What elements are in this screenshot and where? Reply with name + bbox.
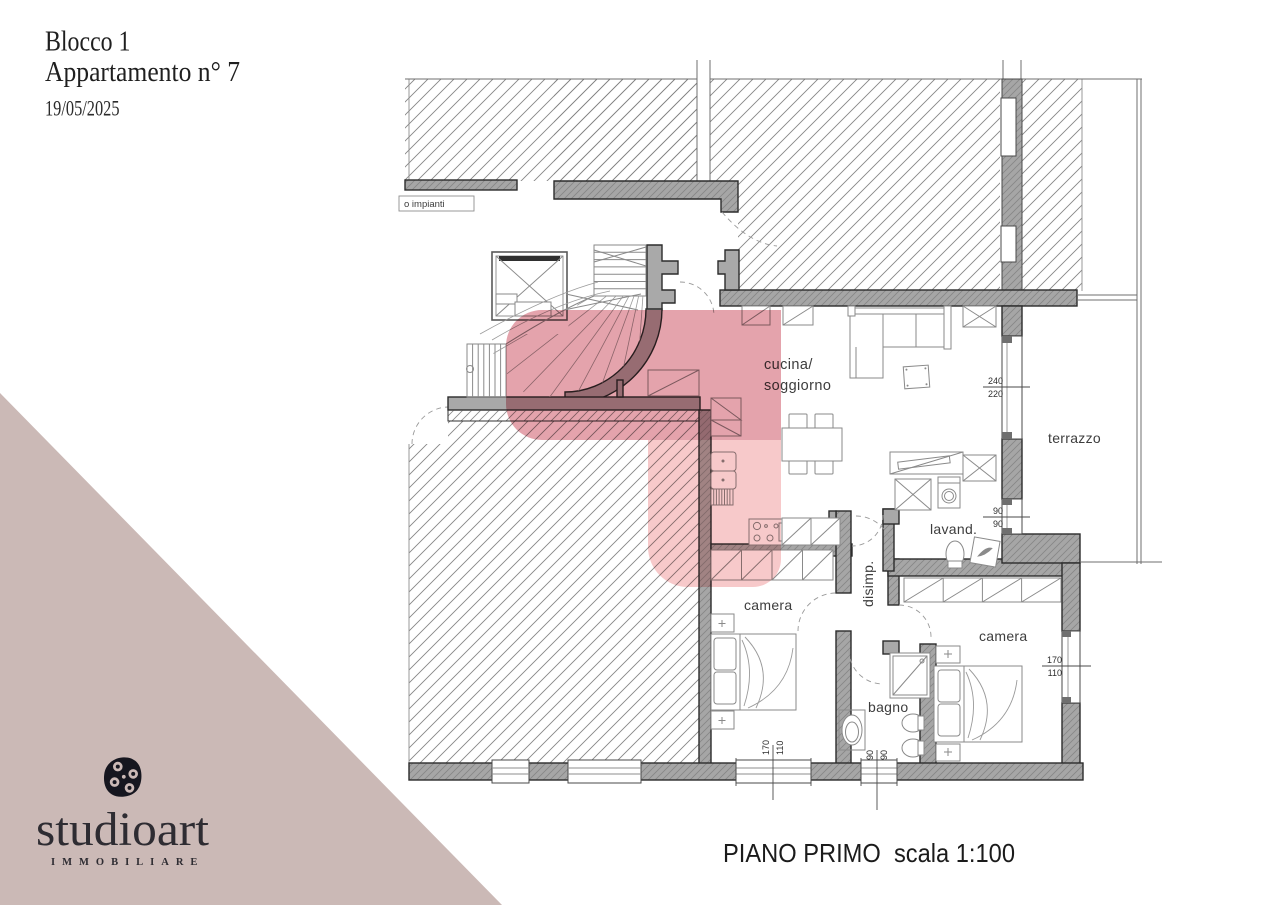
svg-text:220: 220 [988, 389, 1003, 399]
svg-text:90: 90 [993, 519, 1003, 529]
svg-text:disimp.: disimp. [860, 561, 876, 607]
svg-text:studioart: studioart [36, 803, 210, 856]
svg-text:110: 110 [775, 741, 785, 755]
svg-text:IMMOBILIARE: IMMOBILIARE [51, 857, 204, 868]
svg-text:170: 170 [1047, 655, 1062, 665]
svg-text:o impianti: o impianti [404, 199, 445, 210]
svg-text:PIANO PRIMO scala 1:100: PIANO PRIMO scala 1:100 [723, 838, 1015, 868]
svg-text:lavand.: lavand. [930, 521, 977, 537]
svg-text:Appartamento n° 7: Appartamento n° 7 [45, 57, 240, 88]
svg-text:110: 110 [1048, 668, 1062, 678]
svg-text:240: 240 [988, 376, 1003, 386]
svg-text:camera: camera [744, 597, 792, 613]
svg-text:bagno: bagno [868, 699, 908, 715]
svg-text:terrazzo: terrazzo [1048, 430, 1101, 446]
svg-text:90: 90 [879, 750, 889, 760]
svg-text:90: 90 [993, 506, 1003, 516]
svg-text:Blocco 1: Blocco 1 [45, 27, 131, 58]
svg-text:170: 170 [761, 740, 771, 755]
svg-text:19/05/2025: 19/05/2025 [45, 96, 120, 121]
svg-text:90: 90 [865, 750, 875, 760]
svg-text:camera: camera [979, 628, 1027, 644]
